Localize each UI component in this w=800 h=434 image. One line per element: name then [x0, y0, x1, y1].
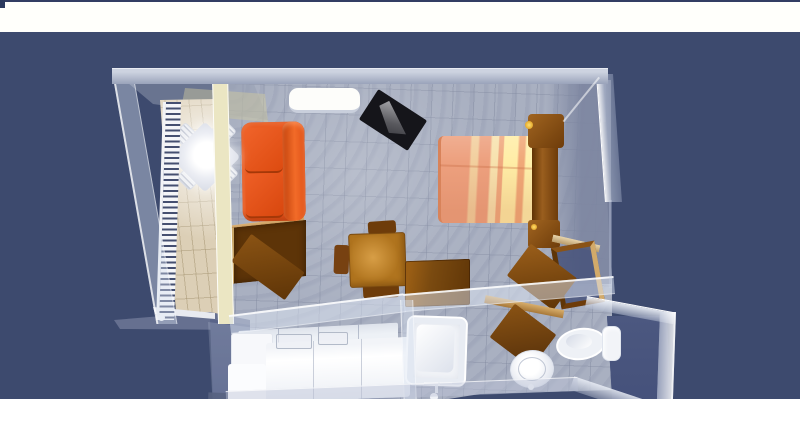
bedside-lamp [525, 121, 533, 129]
north-wall-top [112, 68, 608, 84]
bed-mattress [438, 136, 538, 223]
sofa-cushion [244, 127, 283, 174]
window-corner-icon [0, 0, 5, 8]
app-window [0, 0, 800, 434]
bedside-lamp [531, 224, 537, 230]
east-wall-edge [609, 200, 612, 288]
3d-viewport[interactable] [0, 32, 800, 399]
open-cabinet [225, 216, 305, 302]
top-band [0, 2, 800, 32]
toilet-bowl-inner [566, 334, 592, 349]
dining-table [348, 232, 407, 288]
cistern [602, 326, 621, 361]
wall-radiator [289, 88, 360, 113]
sofa [241, 121, 306, 221]
toilet-area [552, 324, 624, 364]
floor-plan-scene [0, 32, 800, 399]
window-top-edge [0, 0, 800, 2]
bathroom-east-wall [656, 312, 676, 399]
television [360, 94, 426, 156]
sink-inset [276, 334, 312, 349]
nightstand [528, 114, 564, 148]
dining-chair [333, 245, 349, 275]
bottom-band [0, 399, 800, 434]
sofa-cushion [245, 173, 284, 219]
bathtub-basin [415, 324, 455, 372]
stove-inset [318, 332, 348, 345]
sofa-backrest [282, 121, 306, 220]
